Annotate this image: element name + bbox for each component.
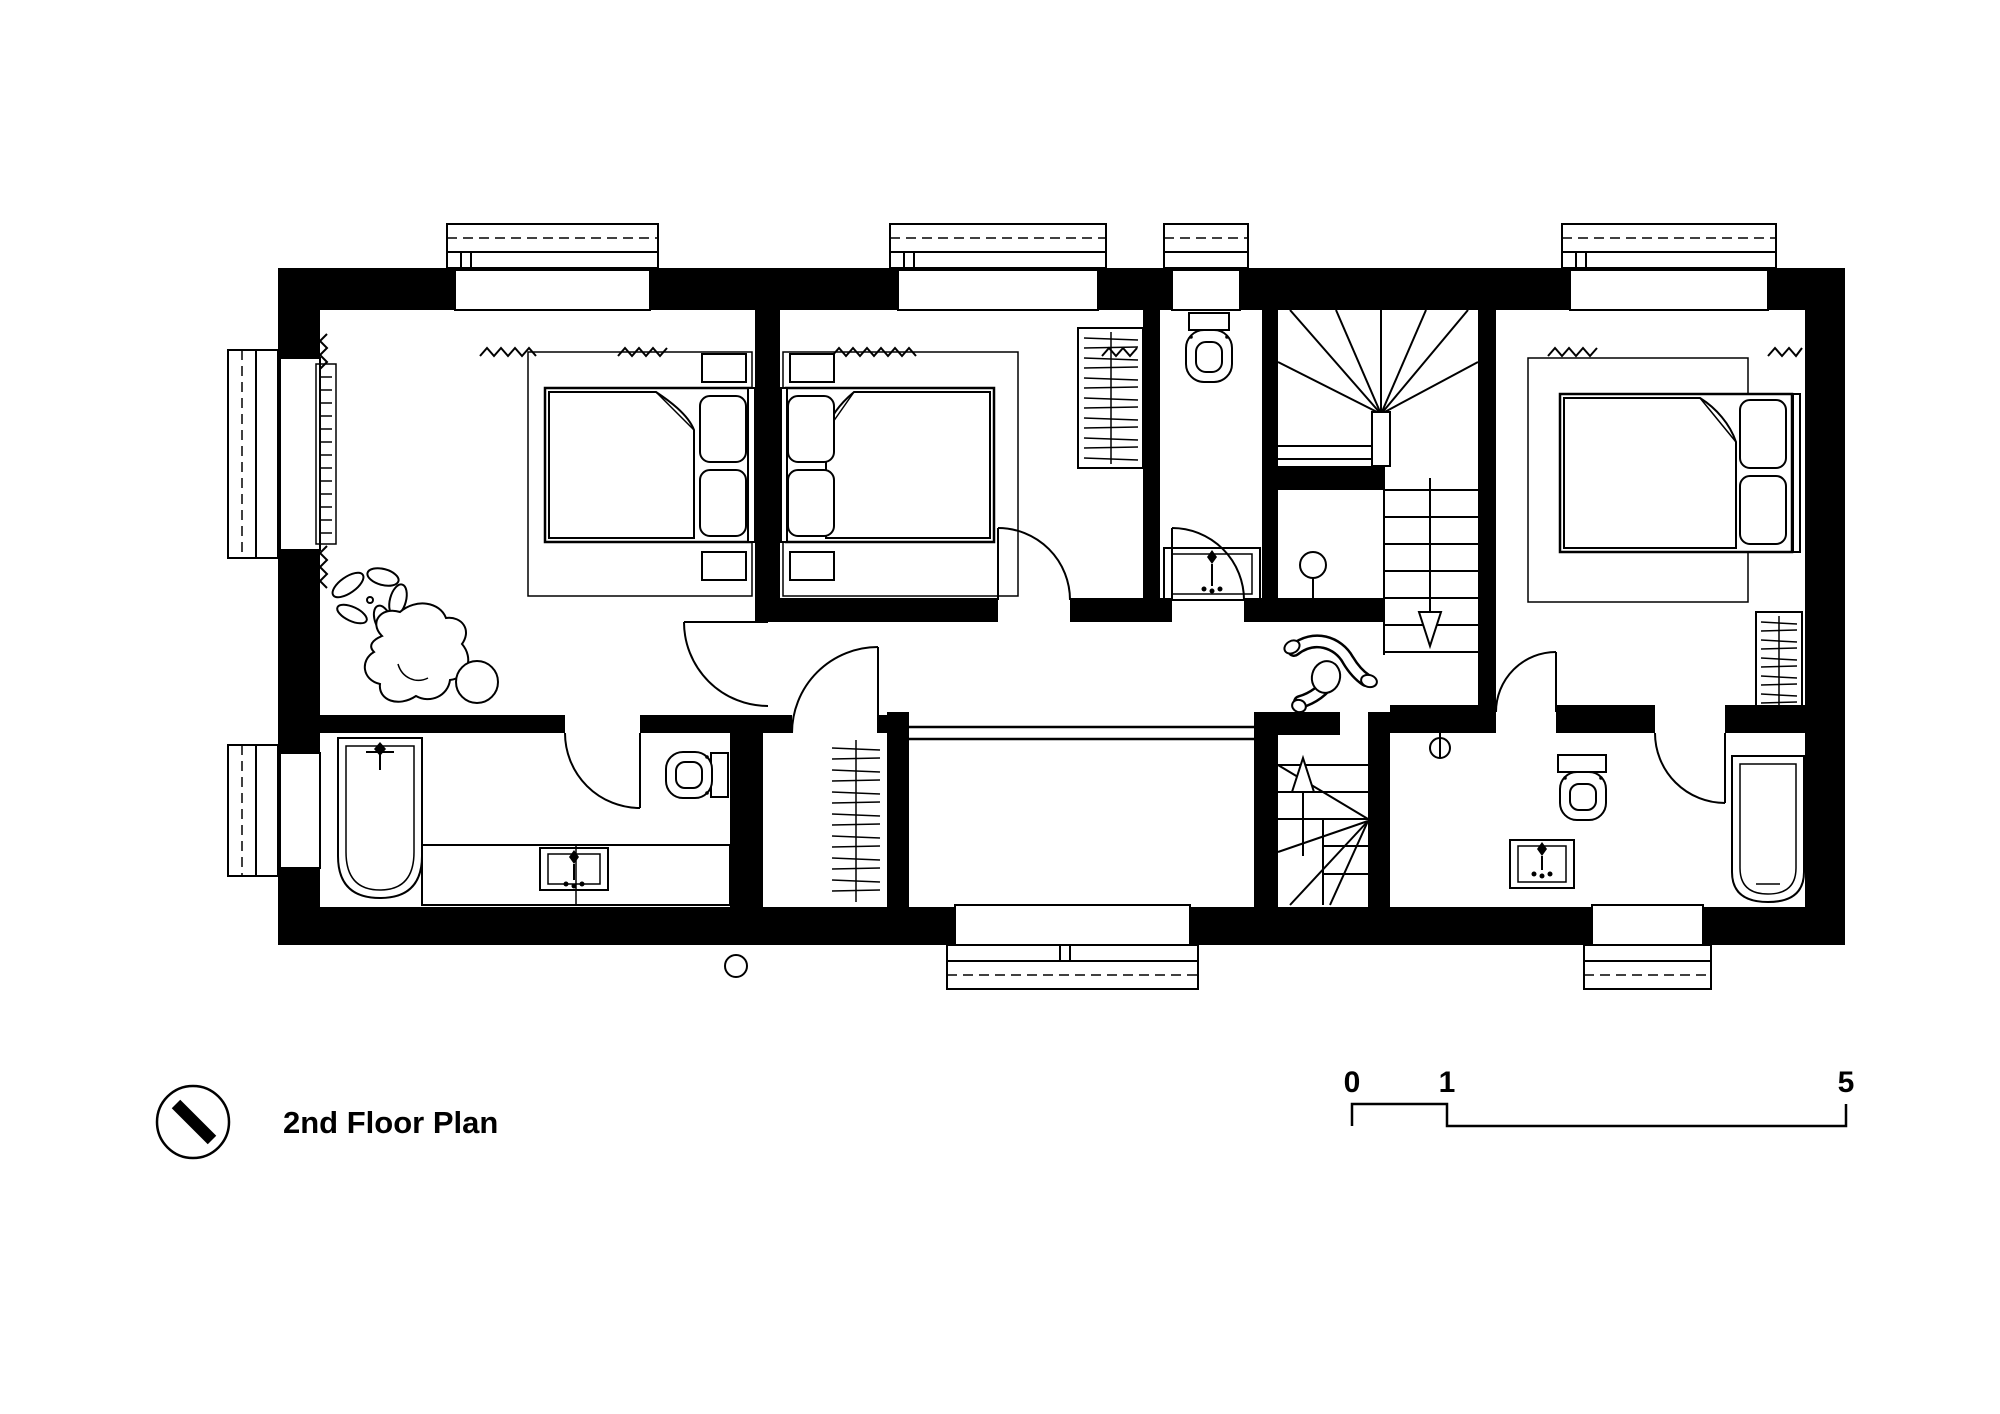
pillow-icon — [788, 470, 834, 536]
pillow-icon — [1740, 476, 1786, 544]
bathtub-icon — [1732, 756, 1804, 902]
bathroom1-fixtures — [338, 738, 730, 905]
scale-label-1: 1 — [1439, 1066, 1456, 1099]
door-closet — [792, 647, 878, 733]
winder-stair2-icon — [1278, 758, 1368, 905]
double-bed-icon — [781, 388, 994, 542]
sink-icon — [540, 848, 608, 890]
scale-label-0: 0 — [1344, 1066, 1361, 1099]
window-bottom-void — [947, 905, 1198, 989]
sheet: 2nd Floor Plan 0 1 5 — [0, 0, 2000, 1414]
toilet-icon — [1186, 313, 1232, 382]
window-left-bedroom1 — [228, 350, 320, 558]
closet-rail-icon — [832, 740, 880, 902]
door-bedroom1 — [684, 622, 768, 706]
pillow-icon — [788, 396, 834, 462]
bathtub-icon — [338, 738, 422, 898]
floor-plan-svg: 2nd Floor Plan 0 1 5 — [0, 0, 2000, 1414]
pillow-icon — [1740, 400, 1786, 468]
plant-icon — [1300, 552, 1326, 601]
sink-icon — [1202, 550, 1223, 594]
window-top-bedroom3 — [1562, 224, 1776, 310]
scale-bar: 0 1 5 — [1344, 1066, 1855, 1126]
window-top-bedroom1 — [447, 224, 658, 310]
window-top-wc — [1164, 224, 1248, 310]
wc-fixtures — [1164, 313, 1260, 600]
window-top-bedroom2 — [890, 224, 1106, 310]
page-title: 2nd Floor Plan — [283, 1105, 498, 1140]
door-bathroom2 — [1655, 733, 1725, 803]
nightstand-icon — [790, 552, 834, 580]
reference-marker-icon — [725, 955, 747, 977]
door-bedroom2 — [998, 528, 1070, 600]
bathroom2-fixtures — [1510, 755, 1804, 902]
nightstand-icon — [702, 552, 746, 580]
stair-direction-arrow-icon — [1419, 478, 1441, 646]
toilet-icon — [1558, 755, 1606, 820]
window-left-bathroom — [228, 745, 320, 876]
armchair-icon — [365, 603, 498, 703]
plant-icon — [1430, 733, 1450, 758]
pillow-icon — [700, 470, 746, 536]
nightstand-icon — [702, 354, 746, 382]
window-bottom-bathroom2 — [1584, 905, 1711, 989]
double-bed-icon — [1560, 394, 1800, 552]
door-bathroom1 — [565, 733, 640, 808]
ottoman-icon — [456, 661, 498, 703]
pillow-icon — [700, 396, 746, 462]
person-icon — [1282, 638, 1378, 714]
void-railing-icon — [909, 727, 1254, 739]
nightstand-icon — [790, 354, 834, 382]
double-bed-icon — [545, 388, 755, 542]
door-bedroom3 — [1496, 652, 1556, 712]
north-arrow-icon — [157, 1086, 229, 1158]
door-wc — [1172, 528, 1244, 600]
vanity-icon — [1164, 548, 1260, 600]
vanity-icon — [422, 845, 730, 905]
sink-icon — [1510, 840, 1574, 888]
bedroom3-furniture — [1528, 358, 1802, 730]
wardrobe-rail-icon — [1078, 328, 1143, 468]
toilet-icon — [666, 752, 728, 798]
bedroom2-furniture — [781, 328, 1143, 596]
scale-label-5: 5 — [1838, 1066, 1855, 1099]
exterior-walls — [278, 268, 1845, 945]
